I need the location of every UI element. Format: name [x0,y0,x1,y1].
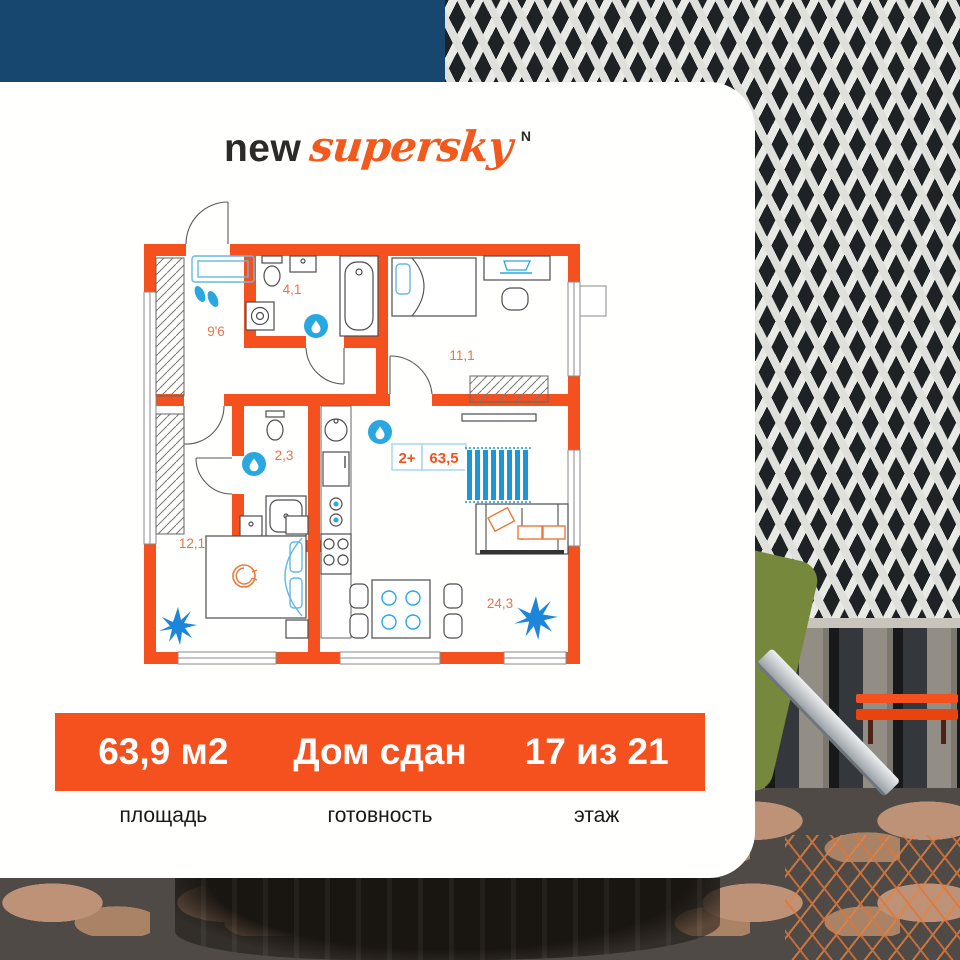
wardrobe [470,376,548,402]
plan-badge: 2+ 63,5 [392,444,466,470]
stat-floor-value: 17 из 21 [488,713,705,791]
room-area-label: 12,1 [179,536,205,551]
stat-area-value: 63,9 м2 [55,713,272,791]
stat-readiness-label: готовность [272,804,489,828]
rope-net [785,835,960,960]
cushion [518,526,542,539]
chair [444,584,462,608]
plant-icon [159,607,197,645]
park-bench [856,694,958,744]
nightstand [286,516,308,534]
room-area-label: 11,1 [449,348,474,363]
bench-legs [856,720,958,744]
stove [321,534,351,574]
logo-mark-icon: N [521,128,531,144]
foreground-shadow [175,878,720,960]
floorplan: 9'6 4,1 [140,194,610,669]
bed [392,258,476,316]
balcony-ledge [580,286,606,316]
wardrobe [156,258,184,396]
room-area-label: 4,1 [283,282,302,297]
stats-labels: площадь готовность этаж [55,804,705,828]
kitchen [321,406,351,638]
wardrobe [156,414,184,534]
tv [462,414,536,421]
nightstand [286,620,308,638]
logo-new: new [224,127,301,171]
dining-set [350,580,462,638]
cushion [543,526,565,539]
toilet [266,411,284,417]
stat-area-label: площадь [55,804,272,828]
water-drop-icon [242,452,266,476]
room-area-label: 24,3 [487,596,513,611]
stats-section: 63,9 м2 Дом сдан 17 из 21 площадь готовн… [55,713,705,828]
badge-area: 63,5 [429,450,458,467]
room-hallway: 9'6 [156,256,254,396]
logo-supersky: supersky [308,122,515,171]
plant-icon [514,596,558,640]
badge-rooms: 2+ [398,450,415,467]
chair [350,614,368,638]
water-drop-icon [304,314,328,338]
chair [444,614,462,638]
bench-backrest [856,694,958,703]
chair [350,584,368,608]
rug [465,448,531,502]
bench-seat [856,709,958,720]
slippers-icon [192,284,220,308]
stats-bar: 63,9 м2 Дом сдан 17 из 21 [55,713,705,791]
water-drop-icon [368,420,392,444]
stat-floor-label: этаж [488,804,705,828]
sofa [476,504,568,554]
brand-logo: new supersky N [0,122,755,171]
room-area-label: 9'6 [207,324,225,339]
stat-readiness-value: Дом сдан [272,713,489,791]
room-bedroom-top: 11,1 [392,256,550,402]
room-area-label: 2,3 [275,448,294,463]
desk [484,256,550,280]
listing-card: new supersky N [0,82,755,878]
dining-table [372,580,430,638]
chair [502,288,528,310]
room-bathroom: 4,1 [246,256,378,338]
sink [290,256,316,272]
toilet [262,256,282,263]
scene: new supersky N [0,0,960,960]
